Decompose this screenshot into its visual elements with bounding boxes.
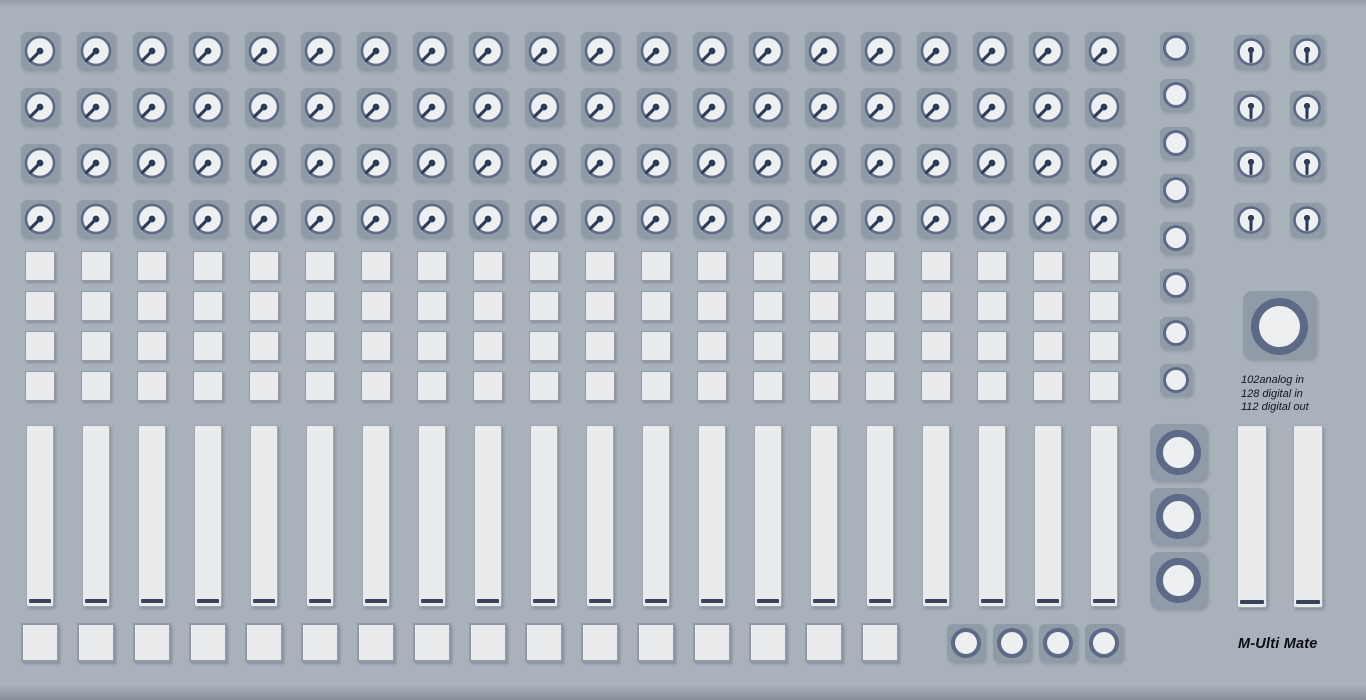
mixer-control-surface: 102analog in 128 digital in 112 digital …	[0, 0, 1366, 700]
io-info: 102analog in 128 digital in 112 digital …	[1241, 374, 1309, 415]
io-info-line: 102analog in	[1241, 374, 1309, 388]
io-info-line: 112 digital out	[1241, 401, 1309, 415]
fader-handle[interactable]	[1240, 600, 1264, 604]
master-fader[interactable]	[1293, 425, 1323, 608]
fader-handle[interactable]	[1296, 600, 1320, 604]
io-info-line: 128 digital in	[1241, 388, 1309, 402]
brand-label: M-Ulti Mate	[1238, 636, 1318, 652]
master-fader-bank	[0, 0, 1366, 700]
master-fader[interactable]	[1237, 425, 1267, 608]
